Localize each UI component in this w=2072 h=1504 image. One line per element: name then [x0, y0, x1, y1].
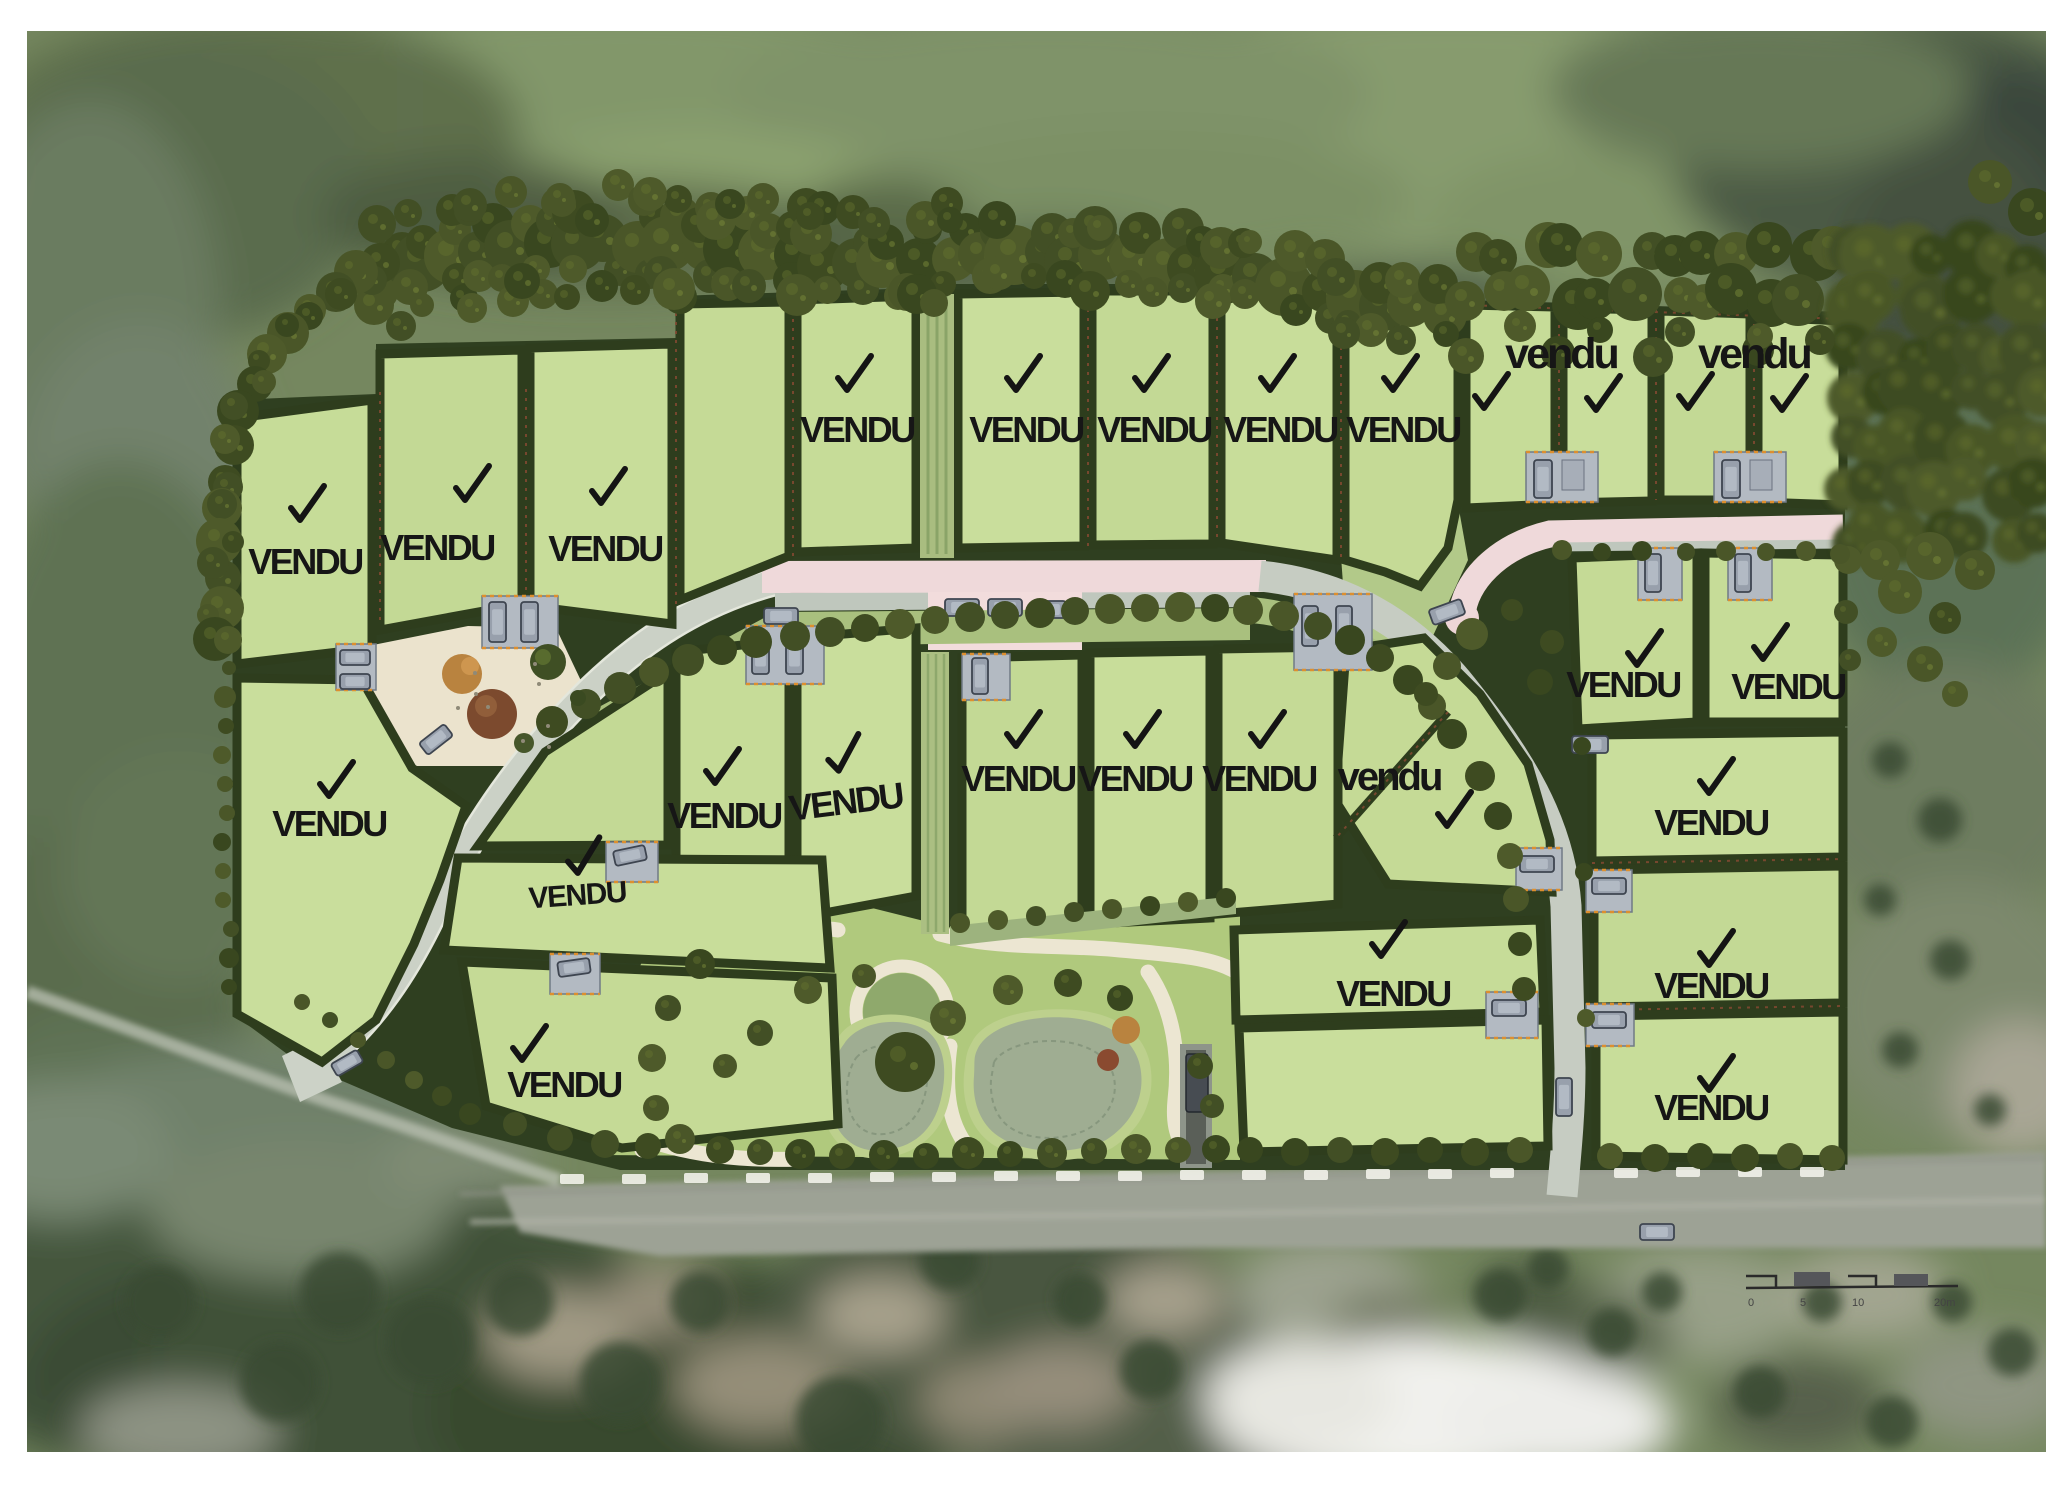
svg-text:vendu: vendu [1505, 330, 1617, 378]
svg-text:VENDU: VENDU [1731, 666, 1845, 707]
svg-text:VENDU: VENDU [1336, 973, 1450, 1014]
svg-text:VENDU: VENDU [667, 795, 781, 836]
svg-text:VENDU: VENDU [1223, 409, 1337, 450]
svg-text:VENDU: VENDU [1654, 802, 1768, 843]
svg-text:VENDU: VENDU [800, 409, 914, 450]
svg-text:VENDU: VENDU [1202, 758, 1316, 799]
svg-text:VENDU: VENDU [961, 758, 1075, 799]
svg-text:vendu: vendu [1698, 330, 1810, 378]
svg-text:VENDU: VENDU [272, 803, 386, 844]
svg-text:10: 10 [1852, 1297, 1864, 1309]
svg-text:VENDU: VENDU [1566, 664, 1680, 705]
svg-text:VENDU: VENDU [1654, 965, 1768, 1006]
svg-text:5: 5 [1800, 1297, 1806, 1309]
svg-text:VENDU: VENDU [528, 876, 628, 916]
svg-text:VENDU: VENDU [548, 528, 662, 569]
svg-text:VENDU: VENDU [1654, 1087, 1768, 1128]
svg-text:VENDU: VENDU [1097, 409, 1211, 450]
svg-text:VENDU: VENDU [969, 409, 1083, 450]
svg-text:VENDU: VENDU [1346, 409, 1460, 450]
svg-text:VENDU: VENDU [507, 1064, 621, 1105]
svg-text:VENDU: VENDU [380, 527, 494, 568]
svg-text:VENDU: VENDU [1078, 758, 1192, 799]
svg-text:VENDU: VENDU [248, 541, 362, 582]
svg-text:20m: 20m [1934, 1297, 1955, 1309]
svg-text:vendu: vendu [1338, 755, 1441, 799]
svg-text:0: 0 [1748, 1297, 1754, 1309]
